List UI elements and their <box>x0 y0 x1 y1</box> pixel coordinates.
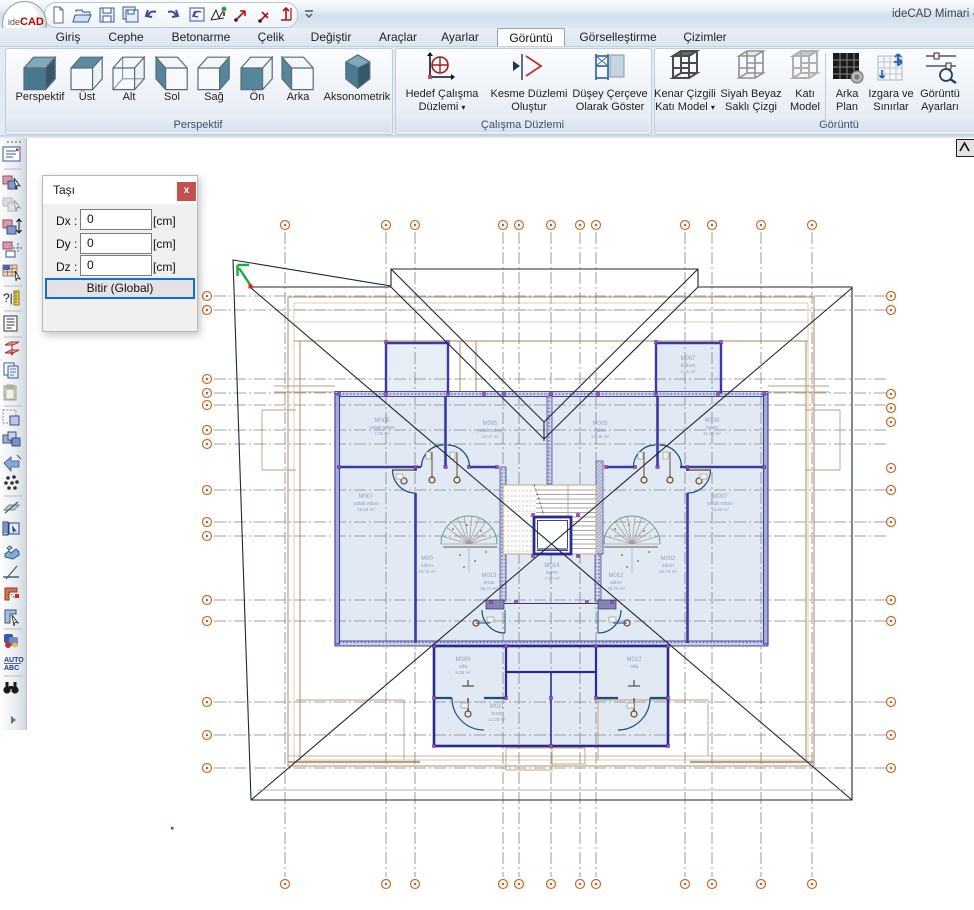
svg-text:13.07 m²: 13.07 m² <box>481 434 499 439</box>
svg-text:13.38 m²: 13.38 m² <box>591 434 609 439</box>
svg-text:38.73 m²: 38.73 m² <box>607 586 625 591</box>
svg-text:M012: M012 <box>626 657 642 663</box>
svg-text:M005: M005 <box>482 421 498 427</box>
svg-text:M009: M009 <box>455 657 471 663</box>
svg-text:15.02 m²: 15.02 m² <box>711 507 729 512</box>
svg-text:M008: M008 <box>374 418 390 424</box>
svg-text:8.38 m²: 8.38 m² <box>455 670 471 675</box>
svg-text:38.41 m²: 38.41 m² <box>480 586 498 591</box>
svg-text:M007: M007 <box>358 494 374 500</box>
svg-text:M006: M006 <box>704 418 720 424</box>
svg-text:4.31 m²: 4.31 m² <box>680 369 696 374</box>
svg-text:15.02 m²: 15.02 m² <box>357 507 375 512</box>
svg-text:7.46 m²: 7.46 m² <box>374 431 390 436</box>
svg-text:M013: M013 <box>481 573 497 579</box>
svg-text:M002: M002 <box>660 556 676 562</box>
svg-text:7.42 m²: 7.42 m² <box>544 576 560 581</box>
svg-text:M007: M007 <box>680 356 696 362</box>
svg-text:11.48 m²: 11.48 m² <box>703 431 721 436</box>
svg-text:33.73 m²: 33.73 m² <box>418 569 436 574</box>
svg-text:M005: M005 <box>592 421 608 427</box>
svg-text:M00: M00 <box>421 556 433 562</box>
svg-text:M011: M011 <box>490 704 505 710</box>
svg-text:oda: oda <box>630 664 639 670</box>
svg-text:33.73 m²: 33.73 m² <box>659 569 677 574</box>
svg-text:12.28 m²: 12.28 m² <box>488 717 506 722</box>
svg-text:M014: M014 <box>544 563 560 569</box>
svg-text:M012: M012 <box>608 573 624 579</box>
svg-text:M007: M007 <box>712 494 728 500</box>
